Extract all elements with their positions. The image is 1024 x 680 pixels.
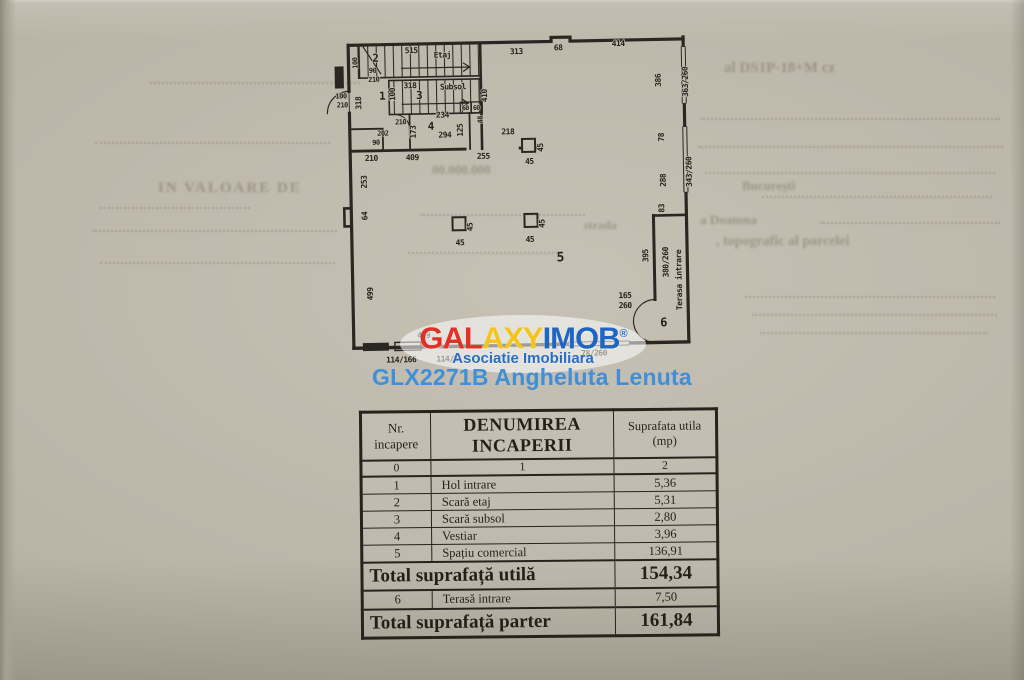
- plan-dim-label: 414: [612, 39, 626, 48]
- room-area-table: Nr. incapereDENUMIREA INCAPERIISuprafata…: [359, 407, 720, 639]
- plan-dim-label: 210: [368, 76, 380, 84]
- bleed-through-line: [95, 142, 330, 144]
- bleed-through-text: București: [742, 178, 795, 194]
- plan-dim-label: 173: [409, 125, 418, 139]
- plan-dim-label: 48: [476, 116, 484, 124]
- table-cell: 2: [614, 457, 717, 474]
- plan-dim-label: 409: [406, 153, 420, 162]
- plan-dim-label: 45: [525, 157, 534, 166]
- plan-dim-label: 45: [537, 219, 546, 228]
- table-cell: DENUMIREA INCAPERII: [430, 410, 613, 460]
- plan-dim-label: 313: [510, 47, 524, 56]
- listing-reference-text: GLX2271B Angheluta Lenuta: [372, 364, 658, 391]
- bleed-through-line: [92, 230, 337, 232]
- plan-dim-label: Etaj: [434, 49, 451, 59]
- plan-dim-label: 6: [660, 315, 667, 329]
- plan-dim-label: 1: [379, 90, 386, 103]
- plan-dim-label: 64: [360, 211, 369, 220]
- plan-dim-label: 100: [351, 57, 359, 69]
- table-cell: Terasă intrare: [432, 588, 615, 609]
- plan-dim-label: 83: [657, 203, 666, 212]
- plan-dim-label: 210: [337, 101, 349, 109]
- plan-dim-label: 60: [473, 104, 481, 112]
- plan-dim-label: 395: [641, 248, 650, 262]
- plan-dim-label: 253: [360, 175, 369, 189]
- plan-dim-label: 410: [480, 88, 489, 102]
- plan-dim-label: 60: [462, 104, 470, 112]
- registered-mark-icon: ®: [620, 328, 627, 340]
- plan-dim-label: 2: [372, 52, 378, 65]
- table-cell: 136,91: [615, 542, 718, 560]
- table-cell: 5: [362, 545, 432, 563]
- bleed-through-text: al DS1P-18+M cz: [724, 60, 835, 77]
- plan-dim-label: 5: [556, 250, 564, 265]
- plan-dim-label: 288: [659, 173, 668, 187]
- bleed-through-line: [700, 118, 1000, 120]
- bleed-through-line: [762, 196, 992, 198]
- table-cell: Scară etaj: [431, 492, 614, 511]
- plan-dim-label: 45: [525, 235, 534, 244]
- plan-dim-label: 499: [366, 287, 375, 301]
- plan-dim-label: 343/260: [684, 156, 694, 187]
- table-cell: Nr. incapere: [360, 412, 430, 461]
- plan-dim-label: 45: [456, 238, 465, 247]
- table-cell: 5,36: [614, 473, 717, 491]
- table-cell: 3,96: [615, 525, 718, 543]
- plan-dim-label: 165: [618, 291, 632, 300]
- plan-dim-label: 100: [335, 92, 347, 100]
- table-cell: 3: [361, 511, 431, 529]
- galaxyimob-logo: GALAXYIMOB®: [419, 321, 626, 351]
- plan-dim-label: 386: [654, 73, 663, 87]
- table-cell: Total suprafață utilă: [362, 560, 615, 590]
- bleed-through-text: , topografic al parcelei: [716, 234, 850, 250]
- plan-dim-label: 125: [456, 123, 465, 137]
- plan-dim-label: 515: [405, 46, 419, 55]
- plan-dim-label: 45: [536, 143, 545, 152]
- table-cell: Spațiu comercial: [432, 543, 615, 562]
- plan-dim-label: 218: [501, 127, 515, 136]
- plan-dim-label: Terasa intrare: [673, 249, 684, 310]
- table-cell: 7,50: [615, 587, 718, 607]
- plan-dim-label: 100: [388, 87, 397, 101]
- plan-dim-label: 4: [427, 120, 434, 133]
- bleed-through-line: [752, 314, 997, 316]
- table-cell: 2,80: [614, 508, 717, 526]
- table-cell: 6: [362, 590, 432, 610]
- plan-dim-label: 380/260: [661, 246, 671, 277]
- bleed-through-line: [100, 262, 335, 264]
- bleed-through-line: [705, 172, 995, 174]
- plan-walls: [326, 35, 692, 352]
- plan-dim-label: 68: [554, 43, 563, 52]
- table-cell: 5,31: [614, 491, 717, 509]
- table-cell: 0: [361, 460, 431, 477]
- plan-dim-label: 210: [365, 154, 379, 163]
- plan-dim-label: 318: [354, 96, 363, 110]
- table-cell: 161,84: [615, 606, 718, 635]
- table-row: Total suprafață parter161,84: [362, 606, 718, 638]
- scanned-document: al DS1P-18+M czBucureștia Doamnastrada, …: [0, 0, 1024, 680]
- table-cell: 1: [431, 458, 614, 476]
- bleed-through-line: [745, 296, 995, 298]
- plan-dim-label: 363/260: [681, 66, 691, 97]
- table-cell: 1: [361, 476, 431, 494]
- plan-dim-label: 202: [377, 130, 389, 138]
- table-cell: Vestiar: [432, 526, 615, 545]
- bleed-through-line: [760, 332, 988, 334]
- table-cell: 154,34: [615, 559, 718, 588]
- table-cell: Total suprafață parter: [362, 607, 615, 638]
- plan-dim-label: 210: [395, 118, 407, 126]
- plan-dim-label: 3: [416, 89, 422, 102]
- plan-dim-label: 78: [657, 132, 666, 141]
- plan-dim-label: 260: [619, 301, 633, 310]
- plan-dim-label: 90: [372, 139, 380, 147]
- plan-dim-label: Subsol: [440, 82, 467, 92]
- table-cell: 2: [361, 494, 431, 512]
- table-cell: Scară subsol: [431, 509, 614, 528]
- table-cell: 4: [362, 528, 432, 546]
- table-row: Nr. incapereDENUMIREA INCAPERIISuprafata…: [360, 409, 716, 461]
- bleed-through-line: [698, 146, 1003, 148]
- plan-dim-label: 255: [477, 152, 491, 161]
- plan-dim-label: 234: [436, 110, 450, 119]
- plan-dim-label: 294: [438, 130, 452, 139]
- bleed-through-text: IN VALOARE DE: [158, 180, 302, 197]
- bleed-through-line: [820, 222, 1000, 224]
- table-cell: Hol intrare: [431, 474, 614, 493]
- plan-dim-label: 45: [466, 222, 475, 231]
- table-cell: Suprafata utila (mp): [613, 409, 716, 458]
- room-area-table-wrapper: Nr. incapereDENUMIREA INCAPERIISuprafata…: [359, 407, 720, 639]
- table-row: Total suprafață utilă154,34: [362, 559, 718, 590]
- bleed-through-line: [100, 207, 250, 209]
- plan-dim-label: 90: [369, 67, 377, 75]
